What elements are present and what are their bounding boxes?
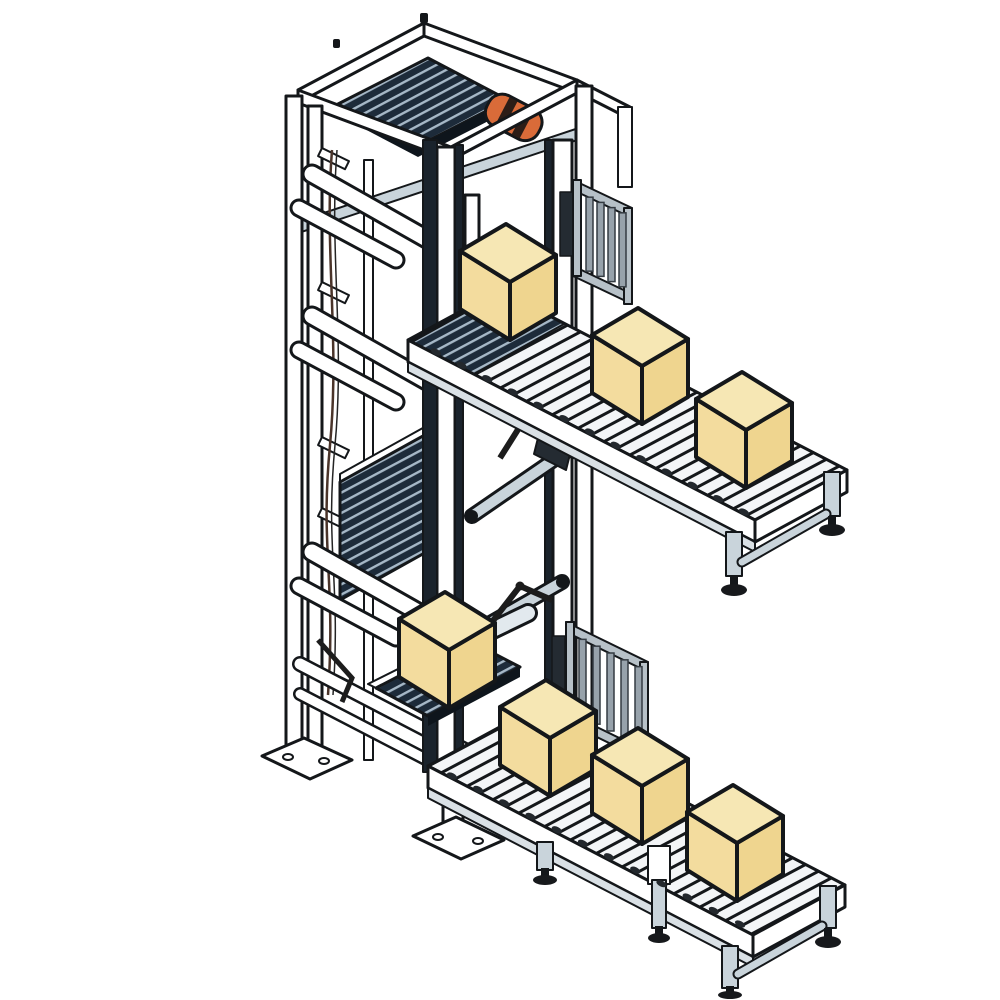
vertical-lift-conveyor-illustration (0, 0, 1000, 1000)
foot-stem (541, 868, 549, 876)
gate-slat (607, 653, 614, 731)
bolt-hole (319, 758, 329, 764)
hook-pivot (516, 582, 525, 591)
base-plate-left (262, 738, 352, 779)
arm-pivot (556, 576, 568, 588)
drawing-layers (262, 13, 847, 999)
leveling-foot (718, 991, 742, 999)
section-joint-bracket (648, 846, 670, 884)
gate-left-stile (573, 180, 581, 276)
gate-slat (597, 202, 604, 276)
illustration-canvas (0, 0, 1000, 1000)
gate-slat (619, 213, 626, 287)
leveling-foot (721, 584, 747, 596)
gate-hanger (618, 107, 632, 187)
photo-sensor-panel (560, 192, 573, 256)
conveyor-leg (537, 842, 553, 870)
foot-stem (655, 926, 663, 934)
gate-slat (621, 660, 628, 738)
leveling-foot (819, 524, 845, 536)
gate-slat (608, 208, 615, 282)
top-bolt (420, 13, 428, 23)
conveyor-leg (726, 532, 742, 576)
leveling-foot (815, 936, 841, 948)
leveling-foot (533, 875, 557, 885)
top-bolt (333, 39, 340, 48)
arm-pivot (466, 510, 478, 522)
bolt-hole (473, 838, 483, 844)
gate-slat (586, 197, 593, 271)
leveling-foot (648, 933, 670, 943)
bolt-hole (283, 754, 293, 760)
bolt-hole (433, 834, 443, 840)
conveyor-leg (722, 946, 738, 988)
